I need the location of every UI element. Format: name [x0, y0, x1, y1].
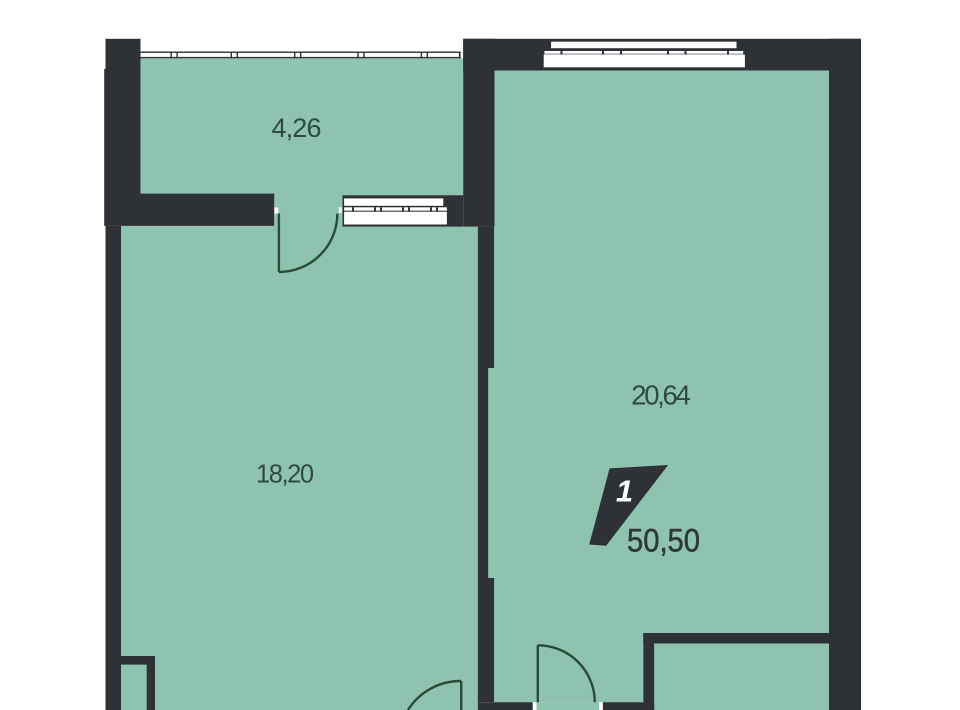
svg-text:1: 1: [616, 474, 633, 509]
svg-text:50,50: 50,50: [627, 522, 700, 558]
svg-text:20,64: 20,64: [631, 379, 691, 410]
svg-text:18,20: 18,20: [256, 460, 314, 488]
svg-text:4,26: 4,26: [272, 113, 322, 143]
